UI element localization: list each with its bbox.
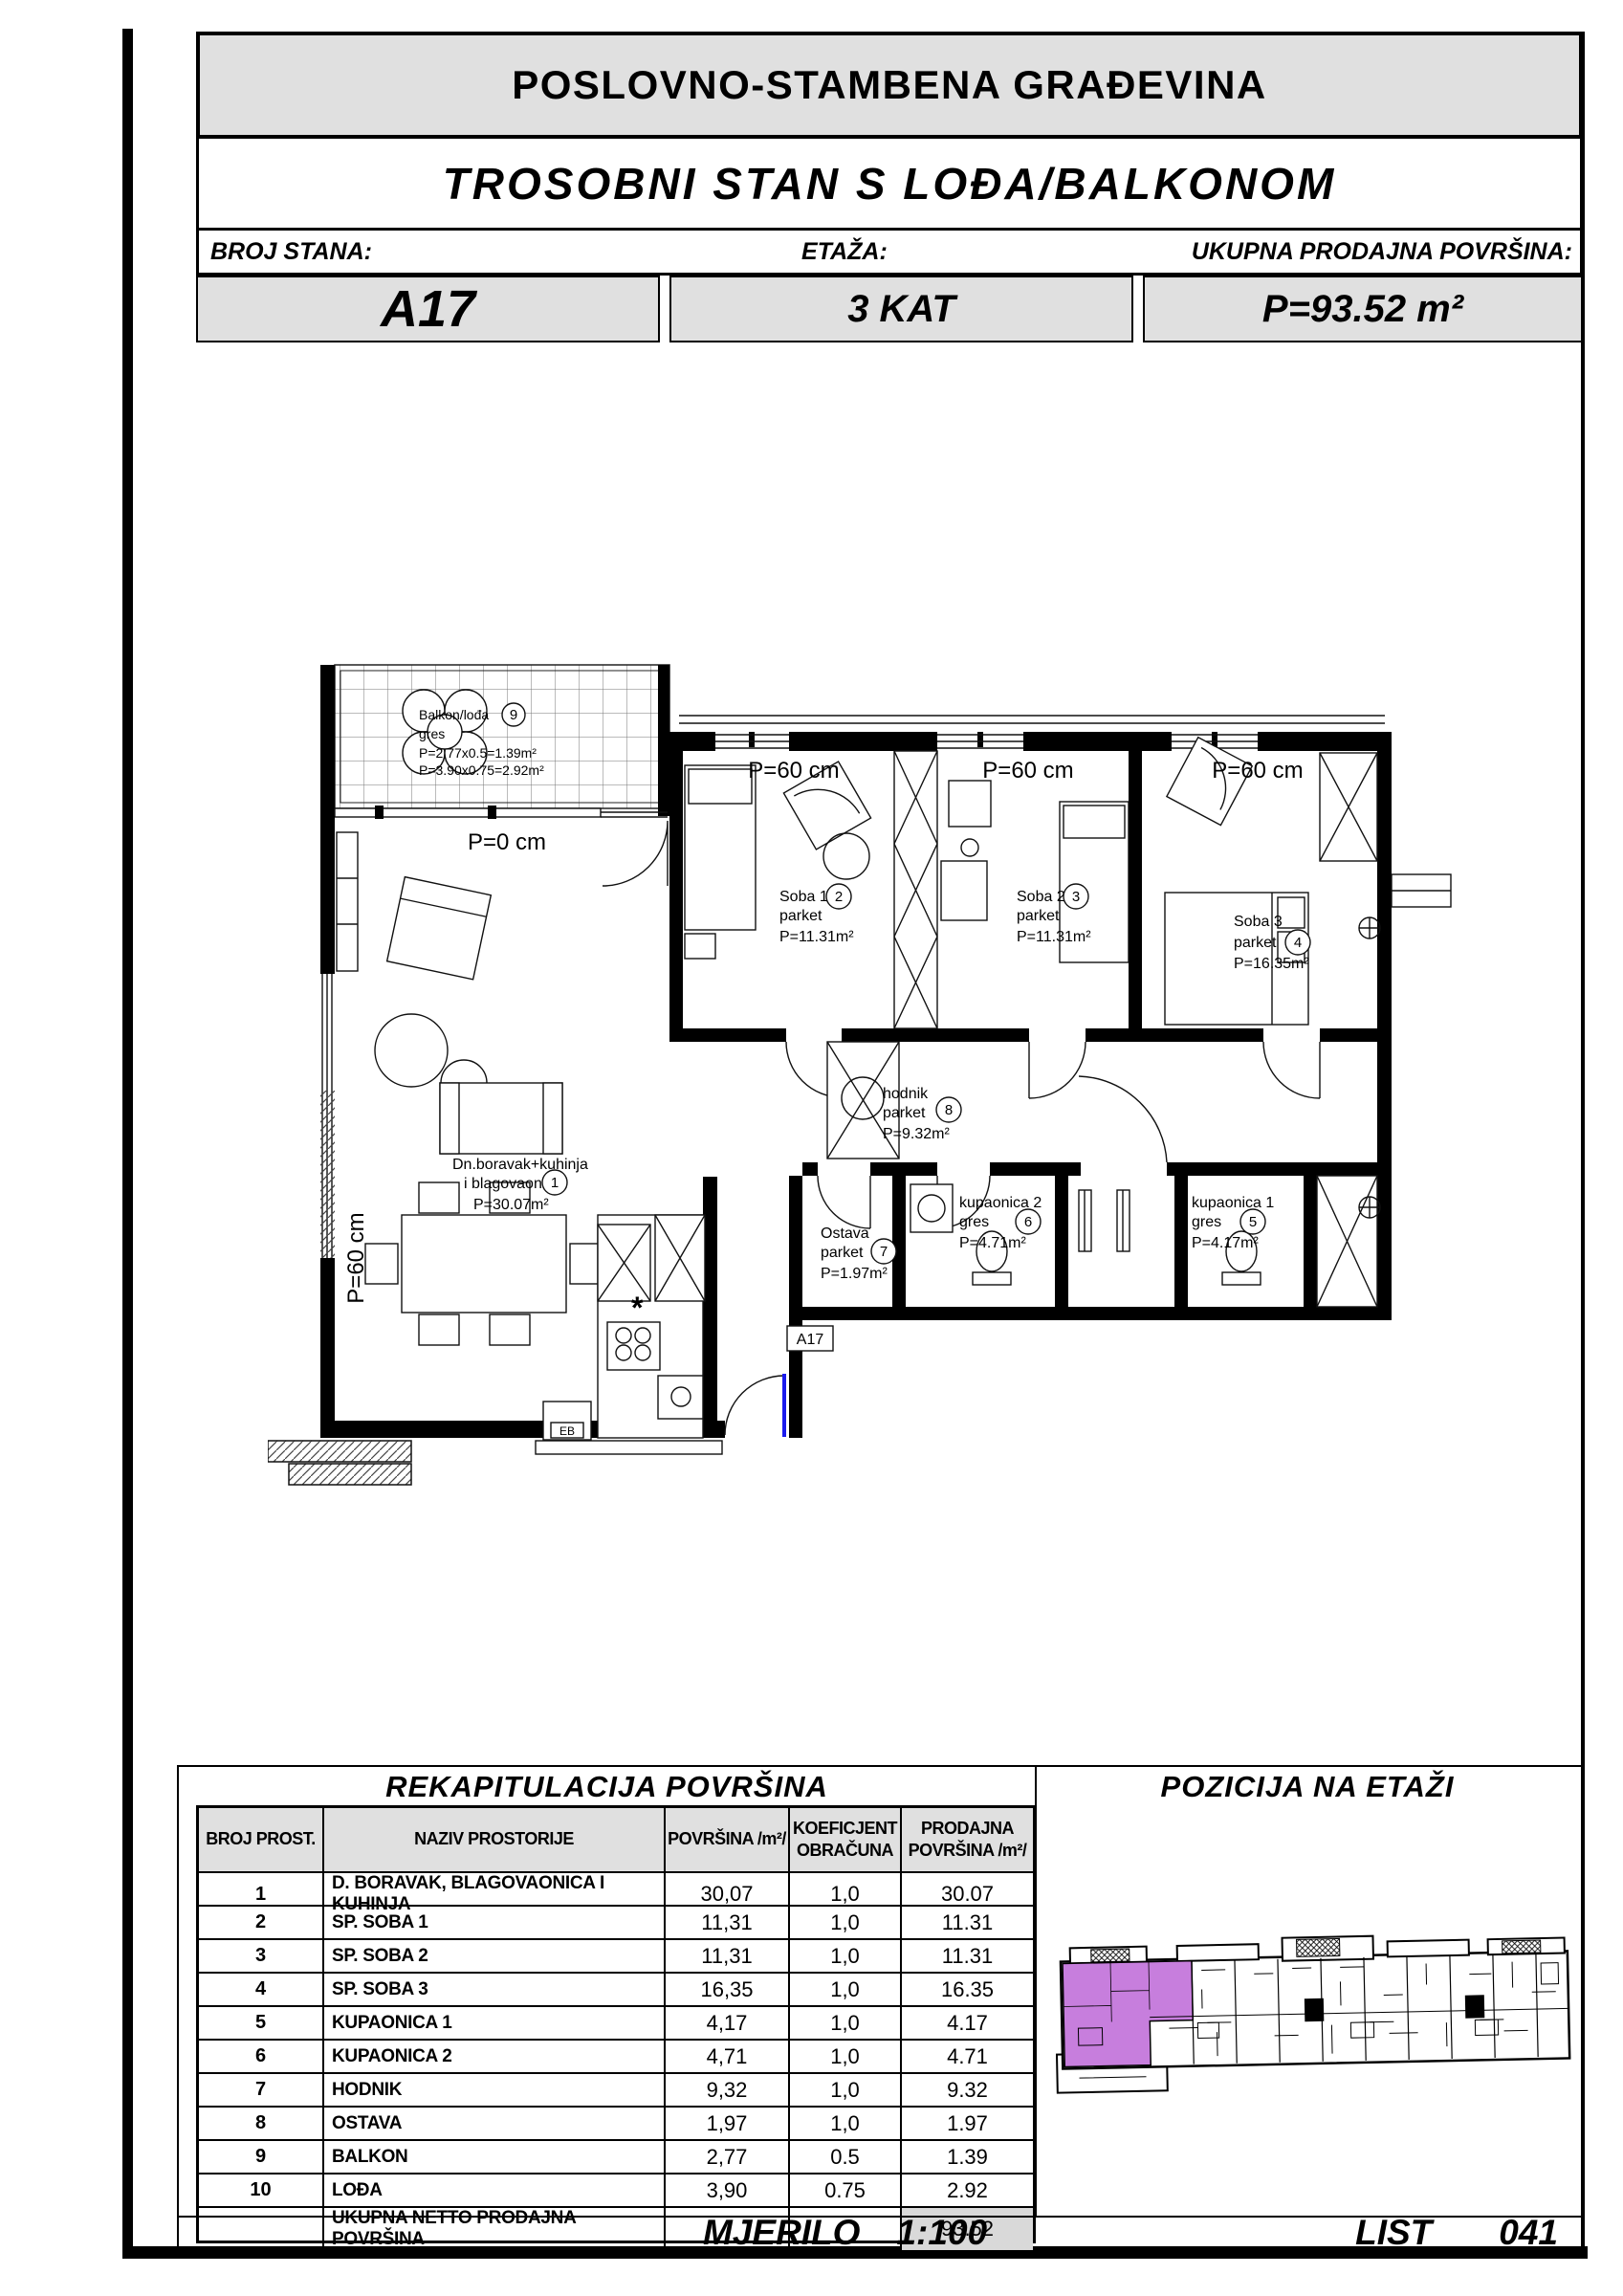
svg-text:8: 8 xyxy=(945,1102,953,1118)
col-header-koeficjent: KOEFICJENTOBRAČUNA xyxy=(790,1808,902,1871)
table-cell: 2 xyxy=(199,1907,324,1938)
table-cell: 9,32 xyxy=(666,2074,790,2106)
table-cell: 1,0 xyxy=(790,2074,902,2106)
col-header-broj-prost: BROJ PROST. xyxy=(199,1808,324,1871)
floor-plan: Balkon/lođa 9 gres P=2.77x0.5=1.39m² P=3… xyxy=(268,641,1492,1502)
table-cell: BALKON xyxy=(324,2141,666,2173)
total-area-value: P=93.52 m² xyxy=(1143,276,1583,342)
svg-text:hodnik: hodnik xyxy=(883,1086,929,1102)
svg-text:P=9.32m²: P=9.32m² xyxy=(883,1126,950,1142)
parapet-60-label-2: P=60 cm xyxy=(982,758,1073,784)
table-cell: 6 xyxy=(199,2041,324,2072)
table-row: 1D. BORAVAK, BLAGOVAONICA I KUHINJA30,07… xyxy=(199,1873,1033,1907)
col-header-prodajna: PRODAJNAPOVRŠINA /m²/ xyxy=(902,1808,1033,1871)
table-row: 10LOĐA3,900.752.92 xyxy=(199,2175,1033,2208)
table-cell: 8 xyxy=(199,2108,324,2139)
svg-text:kupaonica 1: kupaonica 1 xyxy=(1192,1195,1274,1211)
floor-label: ETAŽA: xyxy=(801,238,888,266)
room-label-living: Dn.boravak+kuhinja i blagovaona 1 P=30.0… xyxy=(452,1157,588,1213)
svg-text:parket: parket xyxy=(1017,908,1060,924)
parapet-0-label: P=0 cm xyxy=(468,829,546,855)
table-cell: LOĐA xyxy=(324,2175,666,2206)
floor-value: 3 KAT xyxy=(669,276,1133,342)
table-row: 7HODNIK9,321,09.32 xyxy=(199,2074,1033,2108)
svg-text:P=4.17m²: P=4.17m² xyxy=(1192,1235,1259,1251)
position-mini-map xyxy=(1054,1910,1575,2097)
recap-title: REKAPITULACIJA POVRŠINA xyxy=(179,1771,1035,1803)
svg-text:1: 1 xyxy=(551,1175,559,1191)
svg-text:P=11.31m²: P=11.31m² xyxy=(779,929,854,945)
svg-text:2: 2 xyxy=(835,889,843,905)
svg-text:Ostava: Ostava xyxy=(821,1225,869,1242)
table-cell: 16.35 xyxy=(902,1974,1033,2005)
table-cell: 2.92 xyxy=(902,2175,1033,2206)
svg-text:P=1.97m²: P=1.97m² xyxy=(821,1266,888,1282)
parapet-60-label-1: P=60 cm xyxy=(748,758,839,784)
table-cell: 4,71 xyxy=(666,2041,790,2072)
balcony-name: Balkon/lođa xyxy=(419,707,489,722)
table-cell: 0.5 xyxy=(790,2141,902,2173)
document-subtitle: TROSOBNI STAN S LOĐA/BALKONOM xyxy=(443,158,1337,210)
recap-table-body: 1D. BORAVAK, BLAGOVAONICA I KUHINJA30,07… xyxy=(199,1873,1033,2208)
table-cell: 9.32 xyxy=(902,2074,1033,2106)
table-cell: 1,0 xyxy=(790,2007,902,2039)
document-subtitle-bar: TROSOBNI STAN S LOĐA/BALKONOM xyxy=(196,139,1583,231)
balcony-calc-2: P=3.90x0.75=2.92m² xyxy=(419,762,544,778)
table-cell: 1,0 xyxy=(790,2041,902,2072)
table-cell: 1.39 xyxy=(902,2141,1033,2173)
kitchen-boiler-label: EB xyxy=(559,1424,575,1438)
table-cell: SP. SOBA 1 xyxy=(324,1907,666,1938)
balcony-number: 9 xyxy=(510,707,517,723)
table-cell: 3 xyxy=(199,1940,324,1972)
svg-text:3: 3 xyxy=(1072,889,1080,905)
table-cell: 11,31 xyxy=(666,1940,790,1972)
table-row: 3SP. SOBA 211,311,011.31 xyxy=(199,1940,1033,1974)
svg-text:P=4.71m²: P=4.71m² xyxy=(959,1235,1026,1251)
table-cell: 11.31 xyxy=(902,1907,1033,1938)
sheet-left-border xyxy=(122,29,133,2258)
table-row: 8OSTAVA1,971,01.97 xyxy=(199,2108,1033,2141)
table-cell: OSTAVA xyxy=(324,2108,666,2139)
header-field-labels: BROJ STANA: ETAŽA: UKUPNA PRODAJNA POVRŠ… xyxy=(196,231,1583,276)
sheet-number: 041 xyxy=(1499,2218,1558,2248)
room-label-kupaonica2: kupaonica 2 gres 6 P=4.71m² xyxy=(959,1195,1042,1251)
svg-text:P=16.35m²: P=16.35m² xyxy=(1234,956,1309,972)
svg-text:parket: parket xyxy=(883,1105,926,1121)
table-cell: 10 xyxy=(199,2175,324,2206)
table-cell: 1,0 xyxy=(790,1974,902,2005)
balcony-floor: gres xyxy=(419,726,445,741)
apartment-code-box: A17 xyxy=(787,1326,833,1351)
svg-text:gres: gres xyxy=(1192,1214,1221,1230)
recap-table-header: BROJ PROST. NAZIV PROSTORIJE POVRŠINA /m… xyxy=(199,1808,1033,1873)
table-cell: SP. SOBA 3 xyxy=(324,1974,666,2005)
table-cell: 4.17 xyxy=(902,2007,1033,2039)
apartment-number-label: BROJ STANA: xyxy=(210,238,372,266)
room-label-soba1: Soba 1 2 parket P=11.31m² xyxy=(779,884,854,945)
svg-text:Soba 3: Soba 3 xyxy=(1234,914,1283,930)
lower-section: REKAPITULACIJA POVRŠINA POZICIJA NA ETAŽ… xyxy=(177,1765,1583,2246)
table-cell: 1,0 xyxy=(790,1907,902,1938)
table-cell: 3,90 xyxy=(666,2175,790,2206)
table-cell: 5 xyxy=(199,2007,324,2039)
table-cell: 4 xyxy=(199,1974,324,2005)
table-cell: 1,0 xyxy=(790,2108,902,2139)
svg-text:Soba 1: Soba 1 xyxy=(779,889,828,905)
svg-text:5: 5 xyxy=(1249,1214,1257,1230)
table-cell: 1.97 xyxy=(902,2108,1033,2139)
col-header-naziv: NAZIV PROSTORIJE xyxy=(324,1808,666,1871)
scale-label: MJERILO 1:100 xyxy=(703,2218,987,2248)
living-room-furniture xyxy=(337,832,603,1345)
svg-text:parket: parket xyxy=(821,1245,864,1261)
svg-text:Soba 2: Soba 2 xyxy=(1017,889,1065,905)
header-field-values: A17 3 KAT P=93.52 m² xyxy=(196,276,1583,344)
table-cell: 11.31 xyxy=(902,1940,1033,1972)
svg-text:i blagovaona: i blagovaona xyxy=(464,1176,551,1192)
balcony-calc-1: P=2.77x0.5=1.39m² xyxy=(419,745,537,761)
table-row: 6KUPAONICA 24,711,04.71 xyxy=(199,2041,1033,2074)
table-cell: 11,31 xyxy=(666,1907,790,1938)
parapet-60-label-3: P=60 cm xyxy=(1212,758,1303,784)
room-label-ostava: Ostava 7 parket P=1.97m² xyxy=(821,1225,896,1282)
svg-text:P=30.07m²: P=30.07m² xyxy=(473,1197,549,1213)
table-row: 2SP. SOBA 111,311,011.31 xyxy=(199,1907,1033,1940)
table-cell: KUPAONICA 1 xyxy=(324,2007,666,2039)
sheet-label: LIST 041 xyxy=(1355,2218,1558,2248)
svg-text:4: 4 xyxy=(1294,935,1302,951)
svg-text:Dn.boravak+kuhinja: Dn.boravak+kuhinja xyxy=(452,1157,588,1173)
table-cell: 4.71 xyxy=(902,2041,1033,2072)
entry-steps xyxy=(268,1441,722,1485)
table-cell: 4,17 xyxy=(666,2007,790,2039)
sheet-word: LIST xyxy=(1355,2218,1432,2248)
room-label-hodnik: hodnik 8 parket P=9.32m² xyxy=(883,1086,961,1142)
table-cell: HODNIK xyxy=(324,2074,666,2106)
document-title: POSLOVNO-STAMBENA GRAĐEVINA xyxy=(512,62,1267,108)
apartment-number-value: A17 xyxy=(196,276,660,342)
table-cell: 9 xyxy=(199,2141,324,2173)
svg-text:7: 7 xyxy=(880,1244,888,1260)
svg-text:parket: parket xyxy=(779,908,822,924)
scale-value: 1:100 xyxy=(896,2218,987,2248)
title-block-footer: MJERILO 1:100 LIST 041 xyxy=(179,2216,1585,2248)
room-label-kupaonica1: kupaonica 1 gres 5 P=4.17m² xyxy=(1192,1195,1274,1251)
svg-text:P=11.31m²: P=11.31m² xyxy=(1017,929,1091,945)
recap-table: BROJ PROST. NAZIV PROSTORIJE POVRŠINA /m… xyxy=(196,1805,1036,2243)
kitchen: * EB xyxy=(543,1215,705,1440)
total-area-label: UKUPNA PRODAJNA POVRŠINA: xyxy=(1192,238,1572,266)
table-cell: 1,97 xyxy=(666,2108,790,2139)
position-title: POZICIJA NA ETAŽI xyxy=(1035,1771,1580,1803)
table-row: 9BALKON2,770.51.39 xyxy=(199,2141,1033,2175)
table-cell: 0.75 xyxy=(790,2175,902,2206)
table-cell: KUPAONICA 2 xyxy=(324,2041,666,2072)
svg-text:parket: parket xyxy=(1234,935,1277,951)
svg-text:gres: gres xyxy=(959,1214,989,1230)
svg-text:6: 6 xyxy=(1024,1214,1032,1230)
table-cell: 16,35 xyxy=(666,1974,790,2005)
table-cell: 7 xyxy=(199,2074,324,2106)
table-cell: 1,0 xyxy=(790,1940,902,1972)
kitchen-star: * xyxy=(631,1291,644,1325)
table-cell: SP. SOBA 2 xyxy=(324,1940,666,1972)
table-row: 5KUPAONICA 14,171,04.17 xyxy=(199,2007,1033,2041)
scale-word: MJERILO xyxy=(703,2218,860,2248)
table-cell: 2,77 xyxy=(666,2141,790,2173)
entry-door-line xyxy=(782,1374,786,1437)
parapet-60-label-left: P=60 cm xyxy=(343,1212,369,1303)
svg-text:A17: A17 xyxy=(797,1332,824,1348)
table-row: 4SP. SOBA 316,351,016.35 xyxy=(199,1974,1033,2007)
col-header-povrsina: POVRŠINA /m²/ xyxy=(666,1808,790,1871)
document-title-bar: POSLOVNO-STAMBENA GRAĐEVINA xyxy=(196,32,1583,139)
